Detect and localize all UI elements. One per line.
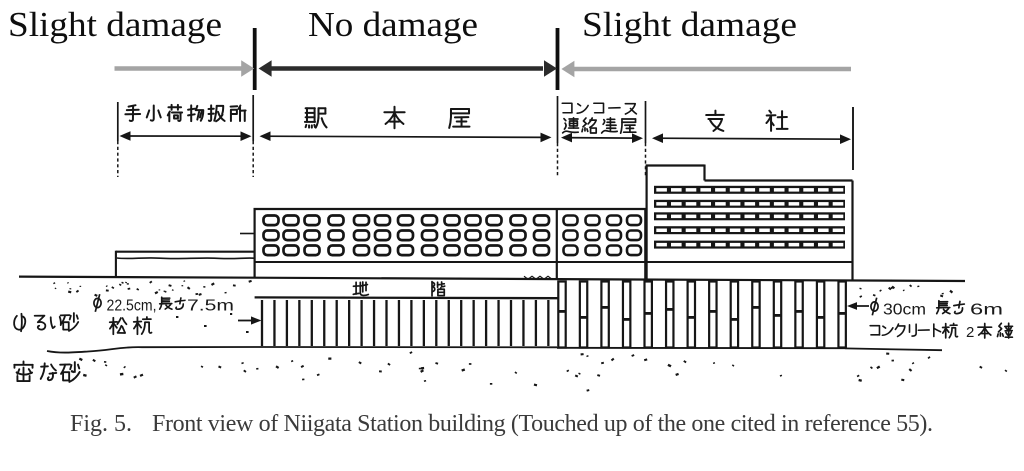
svg-text:No damage: No damage <box>308 5 478 44</box>
svg-text:Fig. 5.: Fig. 5. <box>70 411 132 437</box>
svg-text:22.5cm,: 22.5cm, <box>107 298 157 315</box>
svg-text:7.5m: 7.5m <box>187 298 234 315</box>
svg-text:Slight damage: Slight damage <box>582 5 797 44</box>
svg-text:Slight damage: Slight damage <box>8 5 222 44</box>
svg-text:Front view of Niigata Station: Front view of Niigata Station building (… <box>152 411 933 437</box>
svg-text:6m: 6m <box>970 302 1003 319</box>
svg-text:30cm: 30cm <box>883 302 926 319</box>
svg-text:2: 2 <box>966 324 974 341</box>
